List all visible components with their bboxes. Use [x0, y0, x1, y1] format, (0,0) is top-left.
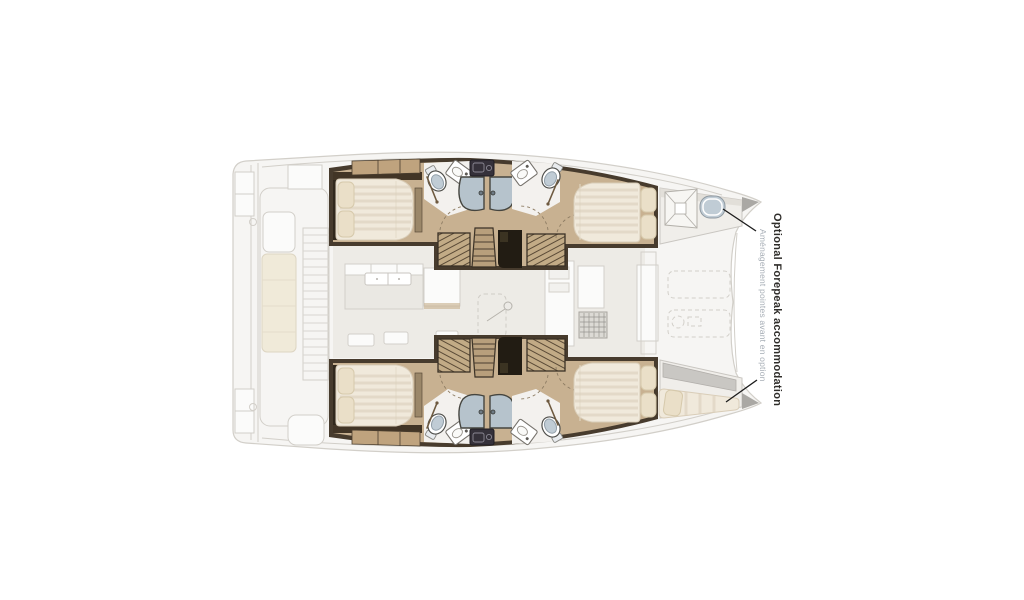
caption-subtitle: Aménagement pointes avant en option	[757, 213, 768, 397]
galley-island	[424, 268, 460, 309]
bed-pillow	[338, 182, 354, 208]
bed-step	[415, 188, 422, 232]
helm-seat	[288, 415, 324, 445]
deck-hatch-icon	[665, 189, 697, 228]
stove-grid	[579, 312, 607, 338]
saloon-table	[365, 273, 411, 285]
galley-sink	[549, 283, 569, 292]
bed-pillow	[641, 215, 656, 239]
cockpit-console	[263, 212, 295, 252]
wardrobe	[438, 233, 470, 266]
saloon-sofa	[345, 264, 423, 309]
caption-title: Optional Forepeak accommodation	[770, 213, 783, 397]
forepeak-caption: Optional Forepeak accommodation Aménagem…	[757, 213, 783, 397]
companionway-stairs	[472, 228, 496, 267]
saloon-forward-door	[637, 265, 658, 341]
floor-plan-canvas	[0, 0, 1024, 600]
bed-pillow	[641, 188, 656, 212]
deck-locker	[288, 165, 322, 189]
catamaran-floor-plan	[0, 0, 1024, 600]
cabin-shelf	[352, 159, 420, 175]
saloon-cushion	[348, 334, 374, 346]
cockpit-bench	[262, 254, 296, 352]
vanity-unit	[470, 160, 494, 176]
saloon-cushion	[384, 332, 408, 344]
bed-pillow	[338, 211, 354, 237]
wardrobe	[527, 234, 565, 266]
berth-pillow	[663, 389, 683, 416]
galley-cabinet	[578, 266, 604, 308]
companionway-well	[498, 230, 522, 268]
double-bed	[336, 179, 413, 240]
forepeak-toilet-icon	[700, 196, 725, 218]
